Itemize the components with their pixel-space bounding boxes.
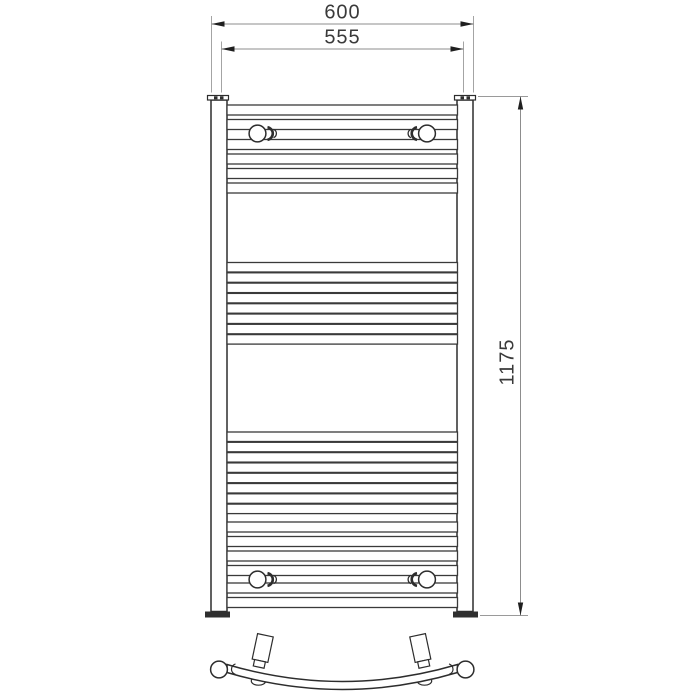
towel-bar bbox=[227, 154, 458, 164]
bracket-arm bbox=[410, 634, 431, 663]
overall-width-label: 600 bbox=[324, 2, 360, 24]
towel-bar bbox=[227, 537, 458, 547]
dimension-overall-height: 1175 bbox=[478, 97, 528, 616]
left-bottom-foot bbox=[205, 612, 230, 618]
cap-detail bbox=[467, 96, 471, 99]
towel-bar bbox=[227, 263, 458, 273]
towel-bar bbox=[227, 183, 458, 193]
bracket-arm bbox=[252, 634, 273, 663]
bracket-centres-width-label: 555 bbox=[324, 27, 360, 49]
overall-height-label: 1175 bbox=[497, 338, 519, 385]
towel-bar bbox=[227, 293, 458, 303]
towel-bar bbox=[227, 598, 458, 608]
towel-bar bbox=[227, 314, 458, 324]
plan-bracket-left bbox=[251, 634, 273, 669]
arrowhead-down-icon bbox=[518, 603, 523, 616]
right-top-cap bbox=[455, 96, 476, 101]
plan-bracket-right bbox=[410, 634, 432, 669]
dimension-bracket-centres-width: 555 bbox=[222, 27, 464, 93]
bracket-base bbox=[418, 660, 430, 669]
towel-bar bbox=[227, 105, 458, 115]
bar-group-lower-middle bbox=[227, 432, 458, 514]
towel-bar bbox=[227, 494, 458, 504]
bracket-plate bbox=[249, 571, 266, 588]
towel-bar bbox=[227, 432, 458, 442]
towel-bar bbox=[227, 324, 458, 334]
towel-bar bbox=[227, 335, 458, 345]
right-rail bbox=[457, 100, 473, 612]
towel-bar bbox=[227, 283, 458, 293]
drawing-canvas: 600 555 1175 bbox=[0, 0, 700, 700]
left-top-cap bbox=[208, 96, 229, 101]
towel-bar bbox=[227, 463, 458, 473]
bracket-plate bbox=[419, 571, 436, 588]
towel-bar bbox=[227, 169, 458, 179]
cap-detail bbox=[220, 96, 224, 99]
arrowhead-right-icon bbox=[461, 21, 474, 26]
plan-view bbox=[211, 634, 474, 690]
arrowhead-right-icon bbox=[451, 46, 464, 51]
towel-bar bbox=[227, 551, 458, 561]
arrowhead-up-icon bbox=[518, 97, 523, 110]
towel-bar bbox=[227, 473, 458, 483]
bracket-plate bbox=[249, 125, 266, 142]
towel-bar bbox=[227, 504, 458, 513]
arrowhead-left-icon bbox=[212, 21, 225, 26]
bar-group-top bbox=[227, 105, 458, 193]
cap-detail bbox=[461, 96, 465, 99]
towel-rail-technical-drawing: 600 555 1175 bbox=[0, 0, 700, 700]
towel-bar bbox=[227, 453, 458, 463]
arrowhead-left-icon bbox=[222, 46, 235, 51]
towel-bar bbox=[227, 442, 458, 452]
left-end-cap bbox=[211, 661, 228, 678]
left-rail bbox=[211, 100, 227, 612]
bar-group-bottom bbox=[227, 522, 458, 608]
right-end-cap bbox=[457, 661, 474, 678]
right-bottom-foot bbox=[453, 612, 478, 618]
bracket-plate bbox=[419, 125, 436, 142]
cap-detail bbox=[214, 96, 218, 99]
towel-bar bbox=[227, 304, 458, 314]
towel-bar bbox=[227, 522, 458, 532]
bracket-base bbox=[253, 660, 265, 669]
towel-bar bbox=[227, 273, 458, 283]
bar-group-upper-middle bbox=[227, 263, 458, 345]
towel-bars bbox=[227, 105, 458, 608]
towel-bar bbox=[227, 484, 458, 494]
front-view bbox=[205, 96, 478, 618]
